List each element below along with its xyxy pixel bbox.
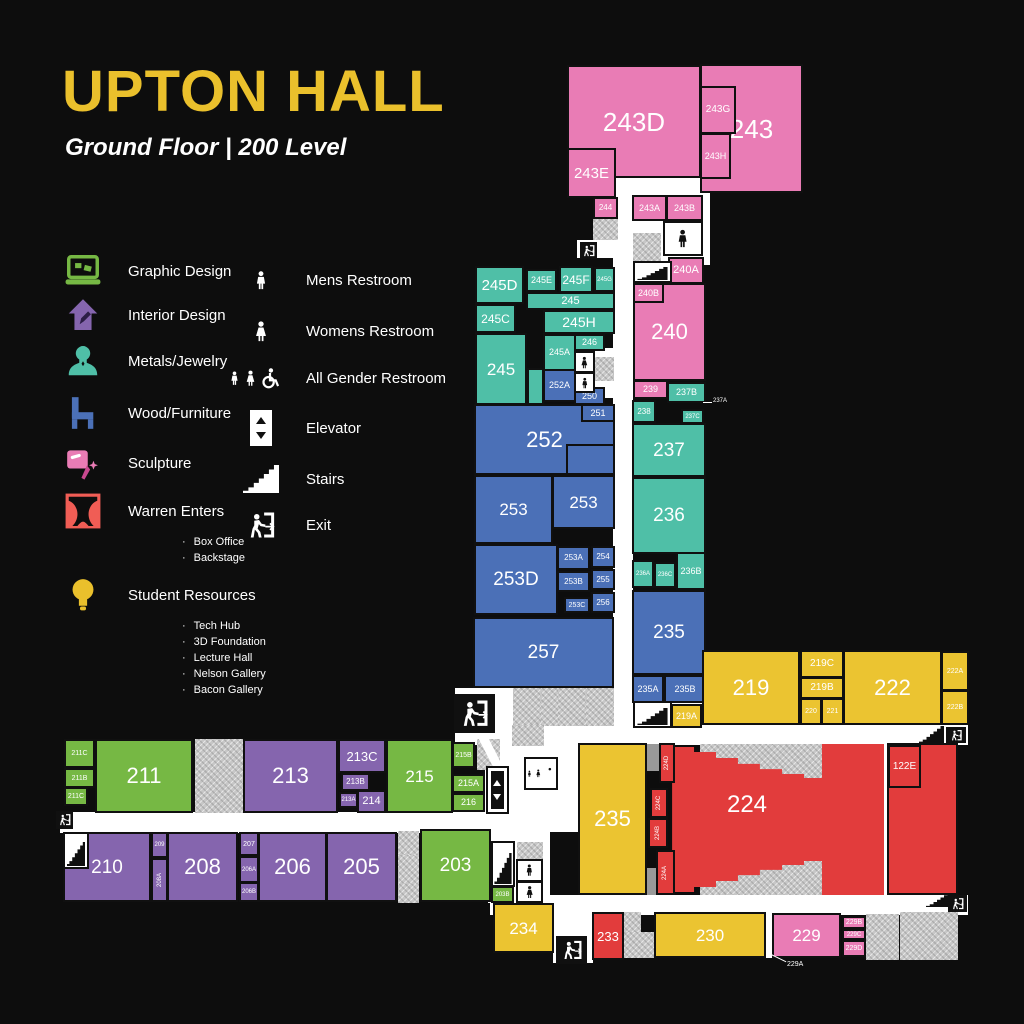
- room-243B: 243B: [666, 195, 703, 221]
- service-area: [593, 218, 618, 240]
- room-label: 253: [499, 501, 527, 518]
- exit-icon: [946, 727, 966, 743]
- room-label: 253: [569, 494, 597, 511]
- room-label: 238: [637, 408, 650, 416]
- stairs-glyph: [637, 267, 667, 280]
- room-211B: 211B: [64, 768, 95, 788]
- room-label: 229: [792, 927, 820, 944]
- room-label: 209: [154, 842, 164, 848]
- room-label: 215A: [458, 779, 479, 788]
- room-label: 216: [461, 798, 476, 807]
- service-area: [398, 831, 419, 856]
- room-253A: 253A: [557, 546, 590, 570]
- room-209: 209: [151, 832, 168, 858]
- room-label: 235A: [637, 685, 658, 694]
- room-label: 245F: [562, 274, 589, 286]
- room-243G: 243G: [700, 86, 736, 134]
- exit-icon: [454, 694, 495, 733]
- room-label: 252: [526, 429, 563, 451]
- floor-plan: 243D243243G243H243E244243A243B240A240240…: [0, 0, 1024, 1024]
- room-label: 245: [487, 361, 515, 378]
- service-area: [586, 688, 614, 726]
- room-label: 214: [362, 796, 380, 807]
- room-237B: 237B: [667, 382, 706, 403]
- room-240B: 240B: [633, 283, 664, 303]
- room-label: 251: [590, 409, 605, 418]
- room-label: 206A: [242, 867, 256, 873]
- room-label: 222B: [947, 704, 963, 711]
- room-label: 222A: [947, 668, 963, 675]
- exit-icon: [56, 811, 73, 829]
- room-label: 237: [653, 441, 685, 460]
- room-label: 253D: [493, 570, 538, 589]
- room-label: 257: [528, 643, 560, 662]
- room-214: 214: [357, 790, 386, 813]
- room-label: 245H: [562, 315, 595, 329]
- room-label: 224C: [656, 796, 662, 810]
- exit-icon: [556, 936, 587, 964]
- room-236B: 236B: [676, 552, 706, 590]
- room-203: 203: [420, 829, 491, 902]
- room-label: 235: [594, 808, 631, 830]
- room-label: 233: [597, 930, 619, 943]
- room-222B: 222B: [941, 690, 969, 725]
- service-area: [398, 855, 419, 885]
- room-206B: 206B: [239, 882, 259, 902]
- room-252A: 252A: [543, 369, 576, 402]
- room-label: 237C: [685, 414, 699, 420]
- room-253: 253: [552, 475, 615, 529]
- room-235: 235: [632, 590, 706, 675]
- room-label: 205: [343, 856, 380, 878]
- room-255: 255: [591, 569, 615, 590]
- room-label: 236C: [658, 572, 672, 578]
- room-label: 234: [509, 920, 537, 937]
- room-243H: 243H: [700, 133, 731, 179]
- room-label: 210: [91, 858, 123, 877]
- room-221: 221: [821, 698, 844, 725]
- room-240A: 240A: [668, 257, 704, 284]
- room-label: 236: [653, 506, 685, 525]
- service-area: [623, 912, 641, 933]
- room-244: 244: [593, 197, 618, 219]
- room-238: 238: [632, 400, 656, 423]
- room-253C: 253C: [564, 597, 590, 613]
- room-215: 215: [386, 739, 453, 813]
- exit-icon: [948, 895, 967, 912]
- room-234: 234: [493, 903, 554, 953]
- room-211C: 211C: [64, 739, 95, 768]
- room-245E: 245E: [526, 269, 557, 292]
- room-label: 253A: [564, 554, 583, 562]
- service-area: [623, 932, 654, 958]
- stairs-glyph: [494, 853, 511, 884]
- stairs-icon: [491, 841, 515, 887]
- stairs-glyph: [67, 842, 86, 866]
- room-245A: 245A: [543, 334, 576, 371]
- womens-restroom-icon: [516, 881, 543, 903]
- service-area: [558, 688, 587, 726]
- room-label: 213C: [346, 750, 377, 763]
- room-237: 237: [632, 423, 706, 477]
- room-unlabeled: [566, 444, 615, 475]
- room-213B: 213B: [341, 773, 370, 791]
- service-area: [195, 739, 244, 813]
- room-230: 230: [654, 912, 766, 958]
- room-label: 213: [272, 765, 309, 787]
- room-253B: 253B: [557, 571, 590, 592]
- room-213: 213: [243, 739, 338, 813]
- room-206: 206: [258, 832, 327, 902]
- room-233: 233: [592, 912, 624, 960]
- room-label: 224D: [664, 756, 670, 770]
- room-236A: 236A: [632, 560, 654, 588]
- room-label: 243B: [674, 204, 695, 213]
- room-235A: 235A: [632, 675, 664, 703]
- room-224A: 224A: [656, 850, 675, 895]
- room-211: 211: [95, 739, 193, 813]
- room-label: 211: [126, 765, 161, 787]
- room-253D: 253D: [474, 544, 558, 615]
- room-label: 243H: [705, 152, 727, 161]
- room-229C: 229C: [842, 929, 866, 940]
- room-254: 254: [591, 546, 615, 568]
- room-label: 253B: [564, 578, 583, 586]
- room-236: 236: [632, 477, 706, 554]
- exit-icon: [580, 242, 597, 259]
- room-label: 253C: [569, 602, 586, 609]
- mens-restroom-icon: [516, 859, 543, 882]
- service-area: [512, 725, 544, 746]
- room-label: 215: [405, 768, 433, 785]
- room-216: 216: [452, 793, 485, 812]
- room-211C: 211C: [64, 787, 88, 806]
- room-label: 229D: [846, 945, 863, 952]
- room-label: 229C: [847, 932, 861, 938]
- room-label: 255: [596, 576, 609, 584]
- stairs-glyph: [637, 708, 667, 725]
- room-245F: 245F: [559, 266, 593, 293]
- room-label: 243D: [603, 109, 665, 135]
- room-label: 224A: [662, 865, 668, 879]
- room-205: 205: [326, 832, 397, 902]
- room-callout-229A: 229A: [787, 961, 817, 971]
- room-label: 246: [582, 338, 597, 347]
- room-label: 221: [827, 708, 839, 715]
- room-label: 211C: [71, 750, 87, 757]
- room-253: 253: [474, 475, 553, 544]
- room-label: 243E: [574, 166, 609, 181]
- room-callout-237A: 237A: [713, 398, 743, 408]
- room-label: 245G: [597, 277, 612, 283]
- service-area: [513, 688, 542, 726]
- room-219C: 219C: [800, 650, 844, 678]
- room-224C: 224C: [650, 788, 668, 818]
- room-229: 229: [772, 913, 841, 958]
- room-label: 213A: [341, 797, 355, 803]
- room-243A: 243A: [632, 195, 667, 221]
- room-213C: 213C: [338, 739, 386, 773]
- room-220: 220: [800, 698, 822, 725]
- room-label: 220: [805, 708, 817, 715]
- room-245: 245: [475, 333, 527, 405]
- room-label: 237B: [676, 388, 697, 397]
- room-label: 243: [730, 116, 773, 142]
- room-label: 244: [599, 204, 612, 212]
- room-label: 203B: [495, 892, 509, 898]
- room-label: 215B: [455, 752, 471, 759]
- room-237C: 237C: [681, 409, 704, 424]
- room-235B: 235B: [664, 675, 706, 703]
- room-208: 208: [167, 832, 238, 902]
- room-239: 239: [633, 380, 668, 399]
- room-label: 219B: [810, 683, 833, 693]
- room-224D: 224D: [659, 743, 675, 783]
- room-label: 252A: [549, 381, 570, 390]
- corridor: [613, 253, 633, 730]
- room-label: 235: [653, 623, 685, 642]
- room-label: 235B: [674, 685, 695, 694]
- room-label: 122E: [893, 762, 916, 772]
- room-206A: 206A: [239, 856, 259, 883]
- room-label: 245E: [531, 276, 552, 285]
- room-257: 257: [473, 617, 614, 688]
- room-label: 219C: [810, 659, 834, 669]
- room-215A: 215A: [452, 774, 485, 793]
- room-label: 254: [596, 553, 609, 561]
- service-area: [517, 842, 543, 860]
- stairs-icon: [633, 701, 672, 728]
- room-208A: 208A: [151, 858, 168, 902]
- service-area: [398, 884, 419, 903]
- room-label: 245D: [482, 278, 518, 293]
- room-label: 219: [733, 677, 770, 699]
- room-219: 219: [702, 650, 800, 725]
- room-label: 222: [874, 677, 911, 699]
- room-245C: 245C: [475, 304, 516, 333]
- room-256: 256: [591, 592, 615, 613]
- room-236C: 236C: [654, 562, 676, 588]
- room-label: 211B: [72, 775, 88, 782]
- room-label: 203: [440, 856, 472, 875]
- room-label: 230: [696, 927, 724, 944]
- room-label: 208: [184, 856, 221, 878]
- room-224B: 224B: [648, 818, 668, 848]
- room-label: 243G: [706, 105, 730, 115]
- stairs-icon: [633, 261, 672, 283]
- room-122E: 122E: [888, 745, 921, 788]
- room-label: 245: [561, 296, 579, 307]
- room-213A: 213A: [339, 792, 358, 808]
- room-label: 239: [643, 385, 658, 394]
- all-gender-restroom-icon: [524, 757, 558, 790]
- stairs-icon: [63, 832, 89, 869]
- room-label: 245A: [549, 348, 570, 357]
- room-label: 224B: [655, 826, 661, 840]
- room-222A: 222A: [941, 651, 969, 691]
- room-203B: 203B: [491, 886, 514, 903]
- callout-line: [703, 402, 712, 403]
- room-215B: 215B: [452, 742, 475, 768]
- room-label: 236B: [680, 567, 701, 576]
- room-245G: 245G: [594, 267, 615, 292]
- service-area: [595, 357, 614, 381]
- room-243E: 243E: [567, 148, 616, 198]
- room-label: 207: [243, 841, 255, 848]
- womens-restroom-icon: [574, 351, 595, 373]
- service-area: [541, 688, 559, 726]
- room-245D: 245D: [475, 266, 524, 304]
- room-251: 251: [581, 404, 615, 422]
- mens-restroom-icon: [574, 372, 595, 393]
- room-235: 235: [578, 743, 647, 895]
- mens-restroom-icon: [663, 221, 703, 256]
- room-label: 206B: [242, 889, 256, 895]
- room-label: 236A: [636, 571, 650, 577]
- room-229B: 229B: [842, 916, 866, 929]
- room-label: 243A: [639, 204, 660, 213]
- room-label: 229B: [846, 919, 862, 926]
- room-245: 245: [526, 292, 615, 310]
- room-219A: 219A: [671, 704, 702, 728]
- room-label: 208A: [157, 873, 163, 887]
- service-area: [900, 912, 958, 960]
- room-219B: 219B: [800, 677, 844, 699]
- room-207: 207: [239, 832, 259, 856]
- room-label: 240B: [638, 289, 659, 298]
- room-label: 256: [596, 599, 609, 607]
- room-label: 206: [274, 856, 311, 878]
- room-unlabeled: [527, 368, 544, 405]
- floor-plan-canvas: UPTON HALL Ground Floor | 200 Level: [0, 0, 1024, 1024]
- service-area: [866, 914, 899, 960]
- room-label: 245C: [481, 313, 510, 325]
- room-label: 240: [651, 321, 688, 343]
- elevator-glyph: [491, 771, 505, 809]
- room-label-floating: 224: [702, 790, 792, 820]
- room-246: 246: [574, 334, 605, 351]
- room-label: 219A: [676, 712, 697, 721]
- elevator-icon: [486, 766, 509, 814]
- room-label: 240A: [673, 265, 699, 276]
- room-245H: 245H: [543, 310, 615, 334]
- room-222: 222: [843, 650, 942, 725]
- room-label: 211C: [68, 793, 84, 800]
- room-229D: 229D: [842, 940, 866, 957]
- room-label: 213B: [346, 778, 365, 786]
